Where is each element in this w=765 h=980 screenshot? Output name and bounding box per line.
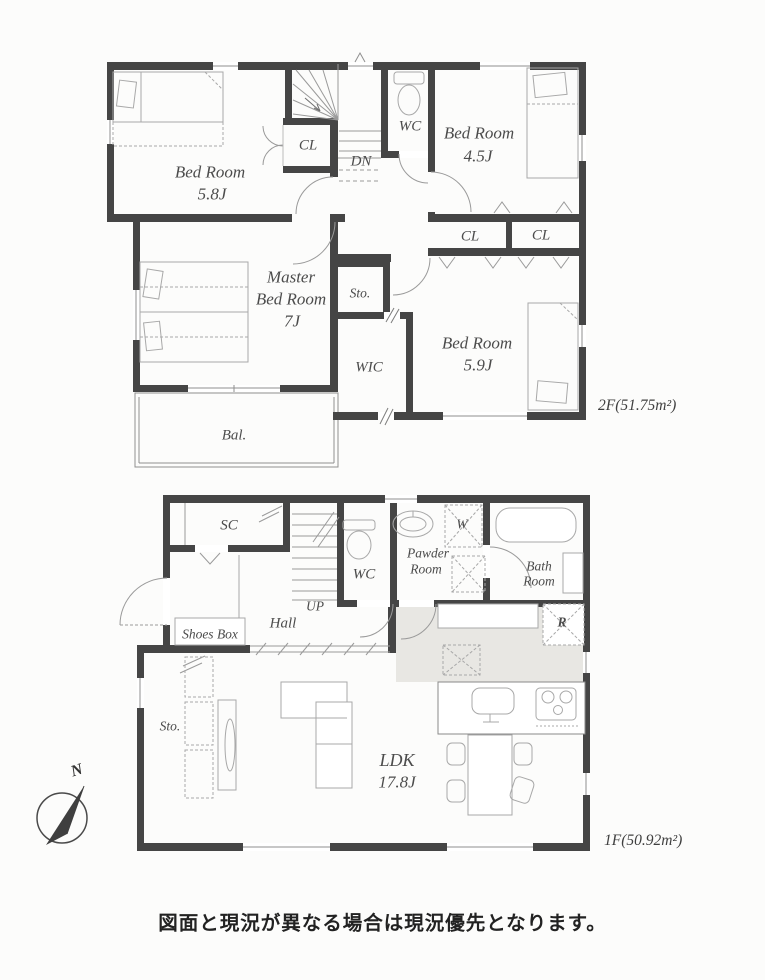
room-label-powder-2: Room (410, 562, 442, 576)
compass-north-icon (37, 786, 87, 845)
room-label-hall: Hall (270, 617, 297, 632)
room-label-bedroom-4-5: Bed Room (444, 125, 514, 142)
room-label-closet-3: CL (532, 229, 550, 244)
room-label-closet-1: CL (299, 139, 317, 154)
floorplan-1f (120, 495, 590, 851)
refrigerator-label: R (557, 615, 566, 629)
room-label-balcony: Bal. (222, 429, 247, 444)
room-label-bath-2: Room (523, 574, 555, 588)
closet-door-marks-2f (439, 202, 572, 268)
room-size-bedroom-4-5: 4.5J (464, 148, 493, 165)
room-label-bath-1: Bath (526, 559, 552, 573)
disclaimer-text: 図面と現況が異なる場合は現況優先となります。 (158, 907, 606, 936)
room-label-closet-2: CL (461, 230, 479, 245)
shoes-box-label: Shoes Box (182, 627, 238, 641)
stairs-down-label: DN (351, 155, 372, 170)
room-label-wic: WIC (355, 361, 383, 376)
walls-2f (107, 62, 586, 420)
floor-area-1f: 1F(50.92m²) (604, 832, 682, 850)
windows-2f (107, 53, 586, 420)
room-label-master-2: Bed Room (256, 291, 326, 308)
room-label-wc-2f: WC (399, 120, 422, 135)
washer-label: W (456, 517, 467, 531)
sliding-door-hatch (250, 643, 390, 655)
room-size-bedroom-5-8: 5.8J (198, 186, 227, 203)
room-label-storage-2f: Sto. (350, 286, 371, 300)
room-label-storage-1f: Sto. (160, 719, 181, 733)
room-label-wc-1f: WC (353, 568, 376, 583)
floorplan-page: Bed Room 5.8J CL DN WC Bed Room 4.5J CL … (0, 0, 765, 980)
room-label-bedroom-5-9: Bed Room (442, 335, 512, 352)
room-label-powder-1: Pawder (407, 546, 449, 560)
floor-area-2f: 2F(51.75m²) (598, 397, 676, 415)
room-size-master: 7J (284, 313, 300, 330)
room-size-bedroom-5-9: 5.9J (464, 357, 493, 374)
stairs-1f (292, 512, 339, 600)
room-label-sc: SC (220, 519, 238, 534)
room-size-ldk: 17.8J (378, 774, 415, 791)
stairs-up-label: UP (306, 599, 324, 613)
room-label-master-1: Master (267, 269, 315, 286)
room-label-ldk: LDK (379, 751, 414, 769)
room-label-bedroom-5-8: Bed Room (175, 164, 245, 181)
floorplan-2f (107, 53, 586, 467)
